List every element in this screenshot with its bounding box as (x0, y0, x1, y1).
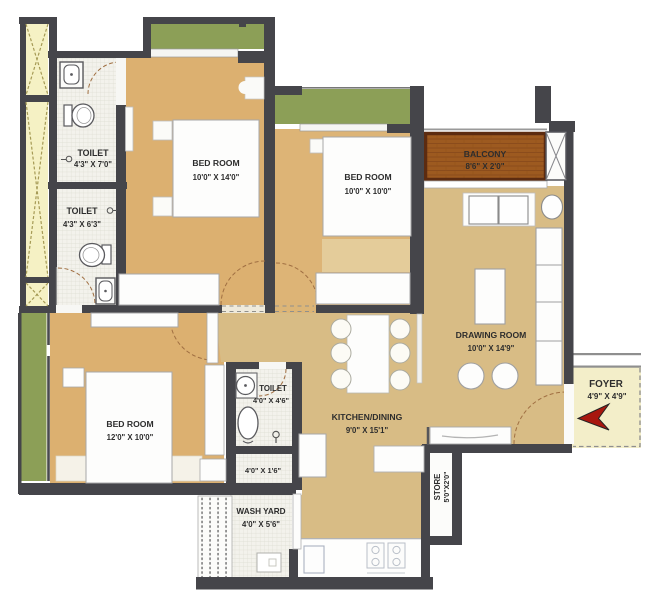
svg-text:10'0" X 10'0": 10'0" X 10'0" (345, 187, 392, 196)
svg-text:FOYER: FOYER (589, 379, 623, 390)
svg-text:TOILET: TOILET (77, 148, 109, 158)
svg-text:8'6" X 2'0": 8'6" X 2'0" (466, 162, 505, 171)
svg-text:4'3" X 7'0": 4'3" X 7'0" (74, 160, 112, 169)
svg-text:BED ROOM: BED ROOM (192, 158, 239, 168)
svg-text:4'0" X 5'6": 4'0" X 5'6" (242, 520, 280, 529)
svg-text:4'0" X 1'6": 4'0" X 1'6" (245, 466, 281, 475)
svg-text:STORE: STORE (433, 474, 442, 501)
svg-text:TOILET: TOILET (259, 384, 287, 393)
svg-text:10'0" X 14'9": 10'0" X 14'9" (468, 344, 515, 353)
svg-text:12'0" X 10'0": 12'0" X 10'0" (107, 433, 154, 442)
svg-text:4'9" X 4'9": 4'9" X 4'9" (588, 392, 627, 401)
svg-text:4'3" X 6'3": 4'3" X 6'3" (63, 220, 101, 229)
svg-text:BALCONY: BALCONY (464, 149, 507, 159)
svg-text:9'0" X 15'1": 9'0" X 15'1" (346, 426, 389, 435)
svg-text:5'0"X2'0": 5'0"X2'0" (442, 471, 451, 502)
svg-text:TOILET: TOILET (66, 206, 98, 216)
svg-text:4'0" X 4'6": 4'0" X 4'6" (253, 396, 289, 405)
svg-text:BED ROOM: BED ROOM (344, 172, 391, 182)
svg-text:10'0" X 14'0": 10'0" X 14'0" (193, 173, 240, 182)
svg-text:KITCHEN/DINING: KITCHEN/DINING (332, 412, 403, 422)
svg-text:WASH YARD: WASH YARD (236, 507, 285, 516)
svg-text:DRAWING ROOM: DRAWING ROOM (456, 330, 527, 340)
svg-text:BED ROOM: BED ROOM (106, 419, 153, 429)
